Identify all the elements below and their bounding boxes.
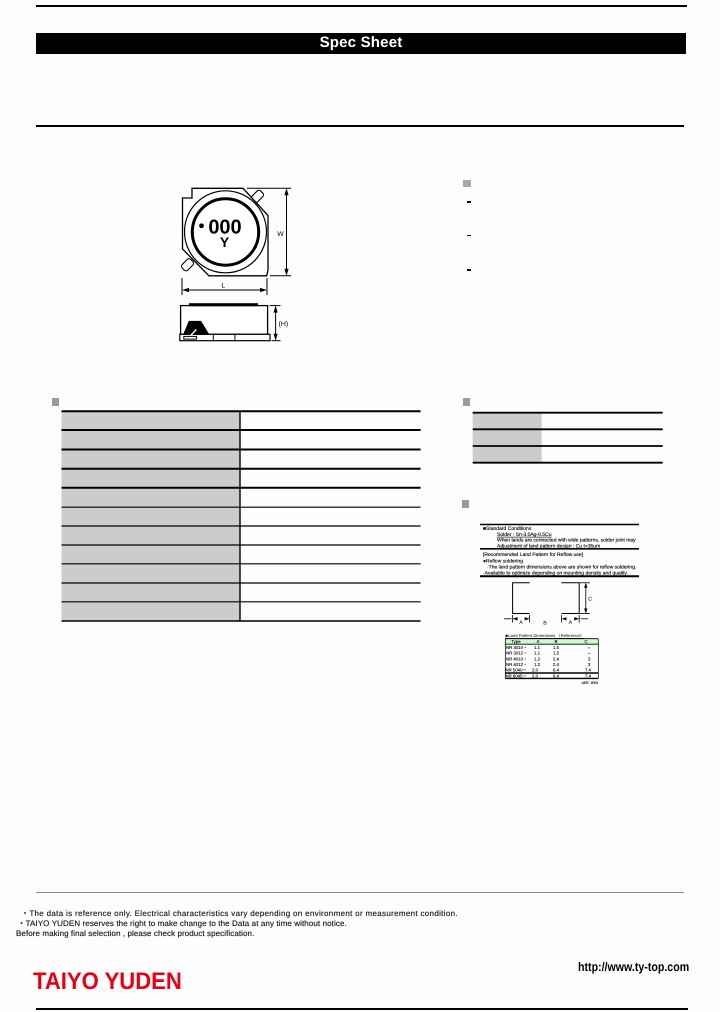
- svg-text:–: –: [588, 645, 591, 650]
- svg-text:1.5: 1.5: [553, 651, 560, 656]
- svg-text:NR 3010・: NR 3010・: [506, 645, 527, 650]
- svg-text:1.1: 1.1: [534, 651, 541, 656]
- svg-text:1.2: 1.2: [534, 662, 541, 667]
- svg-text:7.4: 7.4: [585, 673, 592, 678]
- svg-text:NR 4012・: NR 4012・: [506, 662, 527, 667]
- svg-text:2.0: 2.0: [532, 673, 539, 678]
- svg-text:L: L: [221, 282, 225, 289]
- svg-text:3: 3: [588, 662, 591, 667]
- svg-text:NR 6045－: NR 6045－: [506, 673, 527, 678]
- svg-text:●Reflow soldering: ●Reflow soldering: [483, 558, 523, 564]
- svg-text:◆Land Pattern Dimensions 〈Refe: ◆Land Pattern Dimensions 〈Reference〉: [505, 633, 584, 638]
- svg-text:Type: Type: [511, 639, 521, 644]
- svg-text:6.4: 6.4: [553, 673, 560, 678]
- svg-text:·Available to optimize dependi: ·Available to optimize depending on moun…: [483, 571, 628, 577]
- svg-text:7.4: 7.4: [585, 668, 592, 673]
- svg-text:1.5: 1.5: [553, 645, 560, 650]
- svg-text:NR 3012・: NR 3012・: [506, 651, 527, 656]
- svg-text:A: A: [519, 620, 523, 626]
- svg-text:NR 4010・: NR 4010・: [506, 656, 527, 661]
- svg-text:C: C: [584, 639, 587, 644]
- svg-text:(H): (H): [279, 320, 289, 328]
- svg-text:[Recommended Land Pattern for: [Recommended Land Pattern for Reflow use…: [483, 552, 584, 558]
- svg-text:unit: mm: unit: mm: [582, 680, 599, 685]
- svg-text:W: W: [277, 231, 284, 238]
- svg-text:Y: Y: [220, 234, 230, 250]
- svg-text:1.2: 1.2: [534, 656, 541, 661]
- svg-text:2.0: 2.0: [532, 668, 539, 673]
- svg-text:1.1: 1.1: [534, 645, 541, 650]
- svg-text:B: B: [555, 639, 558, 644]
- svg-text:C: C: [588, 597, 592, 603]
- svg-text:6.4: 6.4: [553, 668, 560, 673]
- svg-text:–: –: [588, 651, 591, 656]
- svg-text:3: 3: [588, 656, 591, 661]
- svg-text:B: B: [543, 621, 547, 627]
- svg-text:NR 5040－: NR 5040－: [506, 668, 527, 673]
- svg-text:2.4: 2.4: [553, 662, 560, 667]
- svg-text:Adjustment of land pattern des: Adjustment of land pattern design : Cu t…: [497, 543, 600, 549]
- svg-text:2.4: 2.4: [553, 656, 560, 661]
- svg-text:A: A: [569, 620, 573, 626]
- svg-text:A: A: [537, 639, 540, 644]
- svg-text:·The land pattern dimensions a: ·The land pattern dimensions above are s…: [487, 565, 636, 571]
